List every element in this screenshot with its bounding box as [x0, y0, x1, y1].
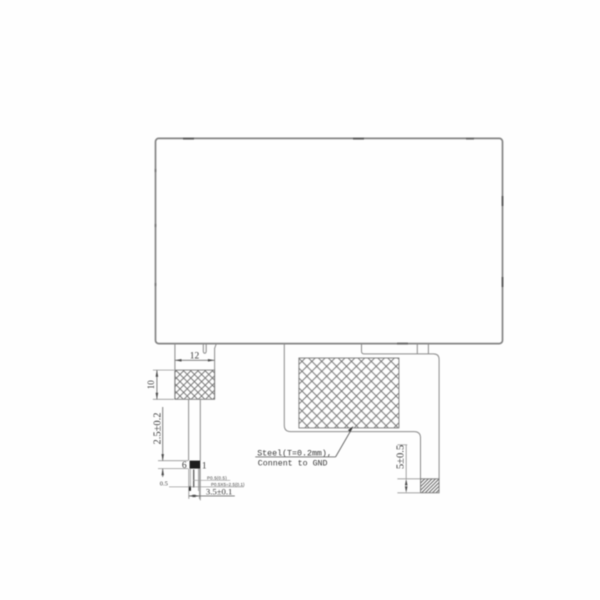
svg-text:6: 6 [182, 461, 187, 471]
svg-text:Connent to GND: Connent to GND [258, 460, 328, 469]
svg-text:10: 10 [146, 380, 156, 390]
svg-text:1: 1 [202, 461, 207, 471]
svg-text:5±0.5: 5±0.5 [396, 445, 407, 469]
svg-text:12: 12 [190, 351, 200, 361]
svg-text:2.5±0.2: 2.5±0.2 [152, 412, 163, 444]
svg-text:P0.5(0.5): P0.5(0.5) [207, 475, 227, 480]
svg-text:0.5: 0.5 [160, 481, 168, 488]
svg-text:3.5±0.1: 3.5±0.1 [206, 486, 233, 496]
